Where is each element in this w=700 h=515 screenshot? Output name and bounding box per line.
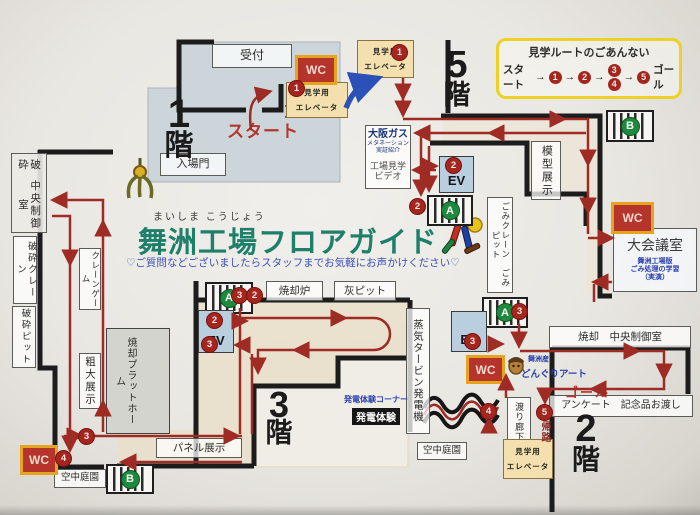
power-corner-text: 発電体験コーナー bbox=[344, 395, 408, 404]
stairs-b-3f: B bbox=[106, 464, 154, 494]
wc-5f: WC bbox=[611, 202, 654, 234]
incinerator-label: 焼却炉 bbox=[279, 285, 311, 297]
num-2: 2 bbox=[252, 290, 257, 301]
route-point-3-ev-2f: 3 bbox=[464, 333, 481, 350]
route-point-3-stairs-2f: 3 bbox=[511, 303, 528, 320]
legend-start: スタート bbox=[503, 62, 532, 92]
num-3: 3 bbox=[237, 290, 242, 301]
route-point-1-elevator-1f: 1 bbox=[288, 80, 305, 97]
goal-label: ゴール bbox=[565, 382, 610, 401]
sky-garden-label: 空中庭園 bbox=[423, 446, 461, 457]
route-point-5: 5 bbox=[536, 404, 553, 421]
floor5-kai: 階 bbox=[444, 83, 471, 108]
power-experience-label: 発電体験 bbox=[356, 409, 396, 424]
num-5: 5 bbox=[542, 407, 547, 418]
maishima-san-text: 舞洲産 bbox=[528, 356, 549, 363]
floor2-number: 2 bbox=[575, 412, 596, 447]
model-label: 模型展示 bbox=[540, 145, 553, 197]
crush-control-text: 破砕 中央制御室 bbox=[17, 154, 41, 232]
room-sky-garden-west: 空中庭園 bbox=[54, 469, 106, 488]
bulky-display-label: 粗大展示 bbox=[84, 356, 96, 406]
room-conference: 大会議室 舞洲工場版 ごみ処理の学習 （実演） bbox=[613, 228, 697, 292]
num-4: 4 bbox=[61, 453, 66, 464]
conference-label: 大会議室 bbox=[627, 237, 683, 253]
stairs-b-letter: B bbox=[121, 470, 140, 489]
legend-step-5: 5 bbox=[637, 71, 650, 84]
route-point-3-west: 3 bbox=[78, 428, 95, 445]
room-reception: 受付 bbox=[212, 44, 292, 68]
room-crush-crane: 破砕クレーン bbox=[13, 236, 37, 304]
acorn-art-label: どんぐりアート bbox=[521, 366, 587, 380]
osaka-gas-label: 大阪ガス bbox=[368, 129, 408, 141]
num-2: 2 bbox=[451, 160, 456, 171]
wc-3f: WC bbox=[20, 445, 58, 475]
platform-label: 焼却プラットホーム bbox=[113, 333, 136, 429]
crush-crane-label: 破砕クレーン bbox=[14, 237, 36, 303]
legend-step-1: 1 bbox=[549, 71, 562, 84]
maishima-san-label: 舞洲産 bbox=[528, 354, 549, 364]
room-osaka-gas-video: 大阪ガス メタネーション実証紹介 工場見学 ビデオ bbox=[365, 125, 411, 189]
subtitle-text: ♡ご質問などございましたらスタッフまでお気軽にお声かけください♡ bbox=[126, 257, 460, 269]
crane-game-label: クレーンゲーム bbox=[80, 249, 100, 309]
wc-2f: WC bbox=[466, 355, 505, 384]
osaka-gas-sub-label: メタネーション実証紹介 bbox=[366, 141, 410, 157]
elevator-label-2: エレベータ bbox=[507, 461, 550, 472]
return-route-text: 帰路 bbox=[539, 421, 550, 443]
route-point-3-ev-3f: 3 bbox=[201, 336, 218, 353]
conference-sub-1: 舞洲工場版 bbox=[638, 258, 673, 266]
route-point-4-east: 4 bbox=[480, 403, 497, 420]
sky-garden-label: 空中庭園 bbox=[61, 473, 99, 484]
wc-label: WC bbox=[623, 211, 643, 225]
room-sky-garden-east: 空中庭園 bbox=[417, 442, 467, 460]
factory-video-label-1: 工場見学 bbox=[370, 161, 406, 171]
stairs-b-5f: B bbox=[606, 110, 654, 142]
legend-goal: ゴール bbox=[653, 62, 675, 92]
route-point-2-stairs-5f: 2 bbox=[409, 198, 426, 215]
floor5-label: 5 階 bbox=[438, 48, 476, 108]
acorn-art-text: どんぐりアート bbox=[521, 369, 587, 380]
route-point-2-ev-3f: 2 bbox=[206, 312, 223, 329]
legend-route-row: スタート → 1 → 2 → 3 4 → 5 ゴール bbox=[503, 62, 675, 92]
room-incineration-control-2f: 焼却 中央制御室 bbox=[549, 326, 691, 348]
wc-label: WC bbox=[306, 63, 326, 77]
reception-label: 受付 bbox=[240, 49, 264, 63]
wc-label: WC bbox=[476, 363, 496, 377]
floor3-label: 3 階 bbox=[260, 388, 298, 446]
room-crush-central-control: 破砕 中央制御室 bbox=[11, 153, 47, 233]
legend-step-4: 4 bbox=[608, 78, 621, 91]
legend-arrow-3: → bbox=[594, 71, 605, 83]
floor2-label: 2 階 bbox=[566, 412, 606, 473]
corridor-label: 渡り廊下 bbox=[514, 402, 524, 442]
room-gomi-crane-pit: ごみクレーン ごみピット bbox=[487, 197, 513, 293]
legend-step-3-4: 3 4 bbox=[608, 64, 621, 91]
title-subtitle: ♡ご質問などございましたらスタッフまでお気軽にお声かけください♡ bbox=[126, 255, 460, 270]
floor3-number: 3 bbox=[269, 388, 289, 421]
route-point-2-stairs-3f: 2 bbox=[246, 287, 263, 304]
conference-sub-3: （実演） bbox=[641, 274, 669, 282]
floor1-label: 1 階 bbox=[158, 96, 200, 159]
power-corner-label: 発電体験コーナー bbox=[344, 394, 408, 405]
elevator-label-2: エレベータ bbox=[296, 102, 339, 113]
return-route-label: 帰路 bbox=[537, 421, 552, 443]
num-1: 1 bbox=[397, 47, 402, 58]
num-3: 3 bbox=[84, 431, 89, 442]
legend-step-2: 2 bbox=[578, 71, 591, 84]
panel-label: パネル展示 bbox=[173, 442, 226, 454]
num-1: 1 bbox=[294, 83, 299, 94]
ash-pit-label: 灰ピット bbox=[344, 285, 386, 297]
num-2: 2 bbox=[415, 201, 420, 212]
crush-label: 破砕 bbox=[17, 154, 41, 176]
conference-sub-2: ごみ処理の学習 bbox=[631, 266, 680, 274]
legend-heading: 見学ルートのごあんない bbox=[503, 44, 675, 60]
room-incineration-platform: 焼却プラットホーム bbox=[106, 328, 170, 434]
num-2: 2 bbox=[212, 315, 217, 326]
route-point-2-ev-5f: 2 bbox=[445, 157, 462, 174]
room-incinerator: 焼却炉 bbox=[266, 281, 323, 301]
elevator-label-2: エレベータ bbox=[364, 61, 407, 72]
room-crush-pit: 破砕ピット bbox=[12, 306, 36, 368]
room-ash-pit: 灰ピット bbox=[334, 281, 396, 301]
floor-guide-map: 受付 WC 見学用 エレベータ 1 1 階 スタート 入場門 まいしま こうじょ… bbox=[0, 0, 700, 515]
power-experience-box: 発電体験 bbox=[352, 408, 400, 425]
stairs-b-letter: B bbox=[621, 117, 640, 136]
factory-video-label-2: ビデオ bbox=[374, 171, 401, 181]
stairs-a-letter: A bbox=[441, 201, 460, 220]
floor2-kai: 階 bbox=[572, 447, 600, 473]
room-panel-display: パネル展示 bbox=[156, 438, 242, 458]
central-control-label: 中央制御室 bbox=[17, 178, 41, 232]
num-3: 3 bbox=[470, 336, 475, 347]
num-3: 3 bbox=[207, 339, 212, 350]
incin-control-label: 焼却 中央制御室 bbox=[578, 331, 662, 343]
crush-pit-label: 破砕ピット bbox=[19, 308, 30, 366]
goal-text: ゴール bbox=[565, 385, 610, 400]
start-text: スタート bbox=[227, 122, 299, 141]
floor5-number: 5 bbox=[446, 48, 467, 83]
ev-label: EV bbox=[448, 173, 465, 188]
num-3: 3 bbox=[517, 306, 522, 317]
legend-arrow-1: → bbox=[535, 71, 546, 83]
route-point-1-elevator-5f: 1 bbox=[391, 44, 408, 61]
route-legend: 見学ルートのごあんない スタート → 1 → 2 → 3 4 → 5 ゴール bbox=[496, 38, 682, 99]
elevator-label-1: 見学用 bbox=[304, 87, 330, 98]
elevator-label-1: 見学用 bbox=[515, 446, 541, 457]
legend-arrow-4: → bbox=[624, 71, 635, 83]
legend-arrow-2: → bbox=[565, 71, 576, 83]
room-crane-game: クレーンゲーム bbox=[79, 248, 101, 310]
num-4: 4 bbox=[486, 406, 491, 417]
gomi-crane-pit-label: ごみクレーン ごみピット bbox=[490, 198, 510, 292]
turbine-label: 蒸気タービン発電機 bbox=[412, 319, 424, 423]
wc-label: WC bbox=[29, 453, 49, 467]
legend-step-3: 3 bbox=[608, 64, 621, 77]
room-bulky-display: 粗大展示 bbox=[79, 353, 101, 409]
route-point-4-west: 4 bbox=[55, 450, 72, 467]
elevator-2f: 見学用 エレベータ bbox=[503, 439, 553, 479]
room-model-display: 模型展示 bbox=[531, 141, 561, 200]
floor3-kai: 階 bbox=[266, 421, 293, 446]
start-label: スタート bbox=[227, 117, 299, 142]
floor1-number: 1 bbox=[168, 96, 190, 133]
floor1-kai: 階 bbox=[164, 133, 193, 160]
room-steam-turbine: 蒸気タービン発電機 bbox=[406, 308, 430, 434]
